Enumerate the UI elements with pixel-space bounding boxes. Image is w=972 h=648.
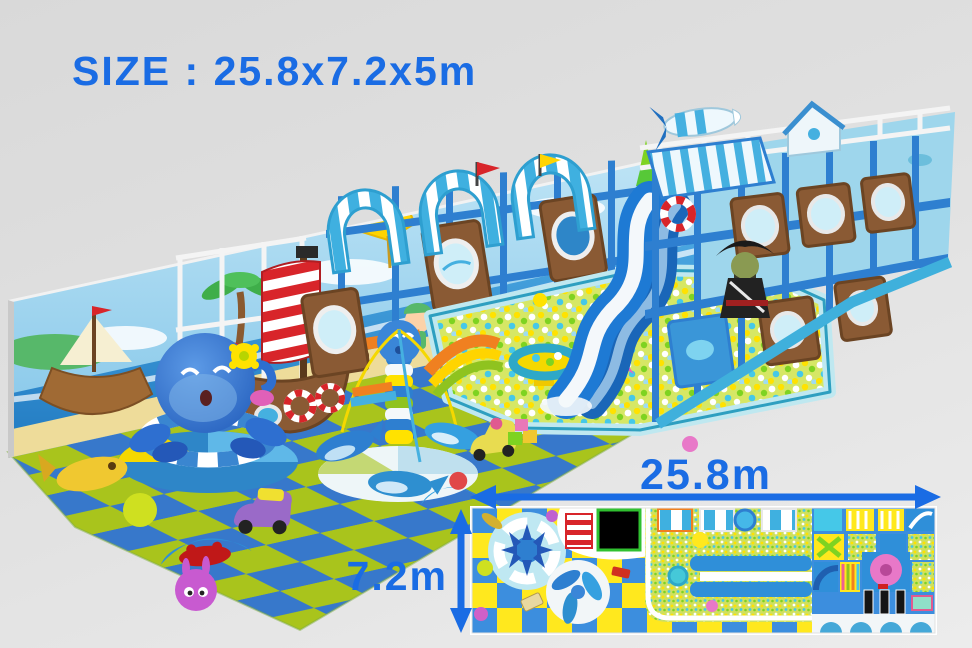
floor-plan [470,506,937,635]
gable-hut [784,104,844,156]
depth-label: 7.2m [347,553,448,599]
plan-pink-ball [474,607,488,621]
green-ball [123,493,157,527]
stray-ball-yellow [533,293,547,307]
plan-canopy-strip [658,509,796,531]
plan-ball-pit [645,508,812,633]
plan-slide-lane [690,556,812,571]
plan-trampoline [598,510,640,550]
width-label: 25.8m [640,451,772,499]
flower-accent [229,343,259,369]
playground-product-render: SIZE : 25.8x7.2x5m [0,0,972,648]
plan-slide-lane [690,582,812,597]
stray-ball-pink [682,436,698,452]
plan-play-grid [812,508,935,633]
scene-illustration: 25.8m 7.2m [0,0,972,648]
plan-purple-ball [546,510,558,522]
plan-green-ball [477,560,493,576]
plan-pirate-ship-top [566,514,592,548]
pink-fish-toy [250,390,274,406]
